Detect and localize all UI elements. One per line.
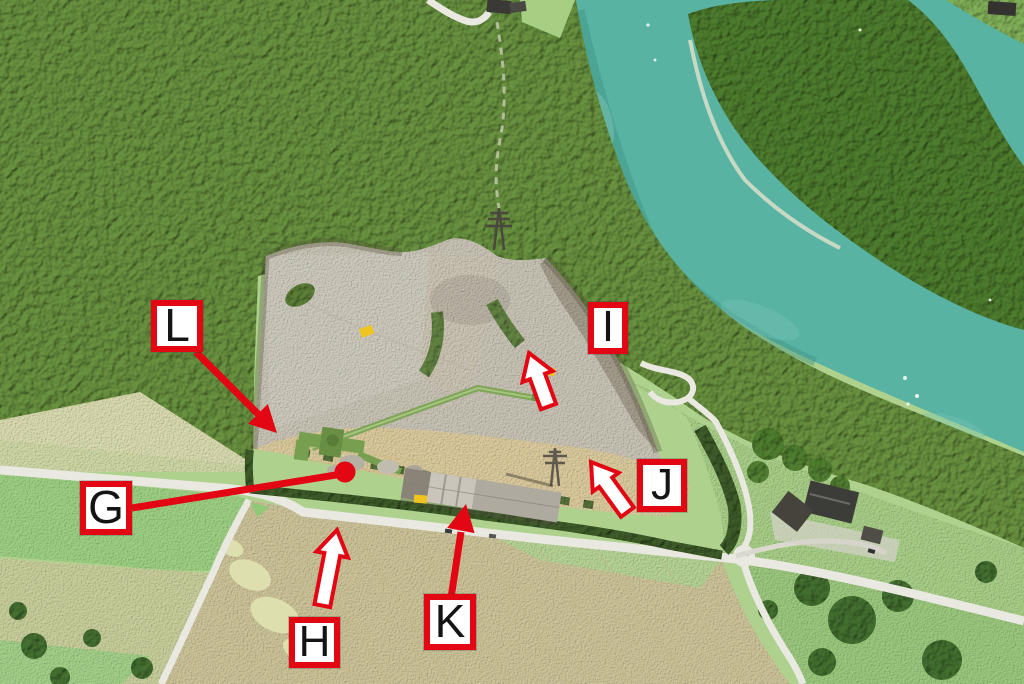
annotated-aerial-photo: G H I J K L xyxy=(0,0,1024,684)
label-letter-i: I xyxy=(602,305,614,349)
annotation-dot-g xyxy=(335,462,356,483)
label-box-j: J xyxy=(637,459,687,512)
label-box-h: H xyxy=(289,617,340,668)
yellow-loader xyxy=(414,494,428,503)
label-box-k: K xyxy=(424,594,476,650)
label-letter-k: K xyxy=(435,598,466,644)
label-box-i: I xyxy=(588,302,628,354)
label-letter-l: L xyxy=(164,302,190,348)
label-letter-h: H xyxy=(299,620,331,664)
label-box-l: L xyxy=(151,300,203,352)
far-shore-building xyxy=(988,1,1017,16)
label-box-g: G xyxy=(80,481,132,535)
label-letter-g: G xyxy=(88,484,124,530)
label-letter-j: J xyxy=(651,463,673,507)
